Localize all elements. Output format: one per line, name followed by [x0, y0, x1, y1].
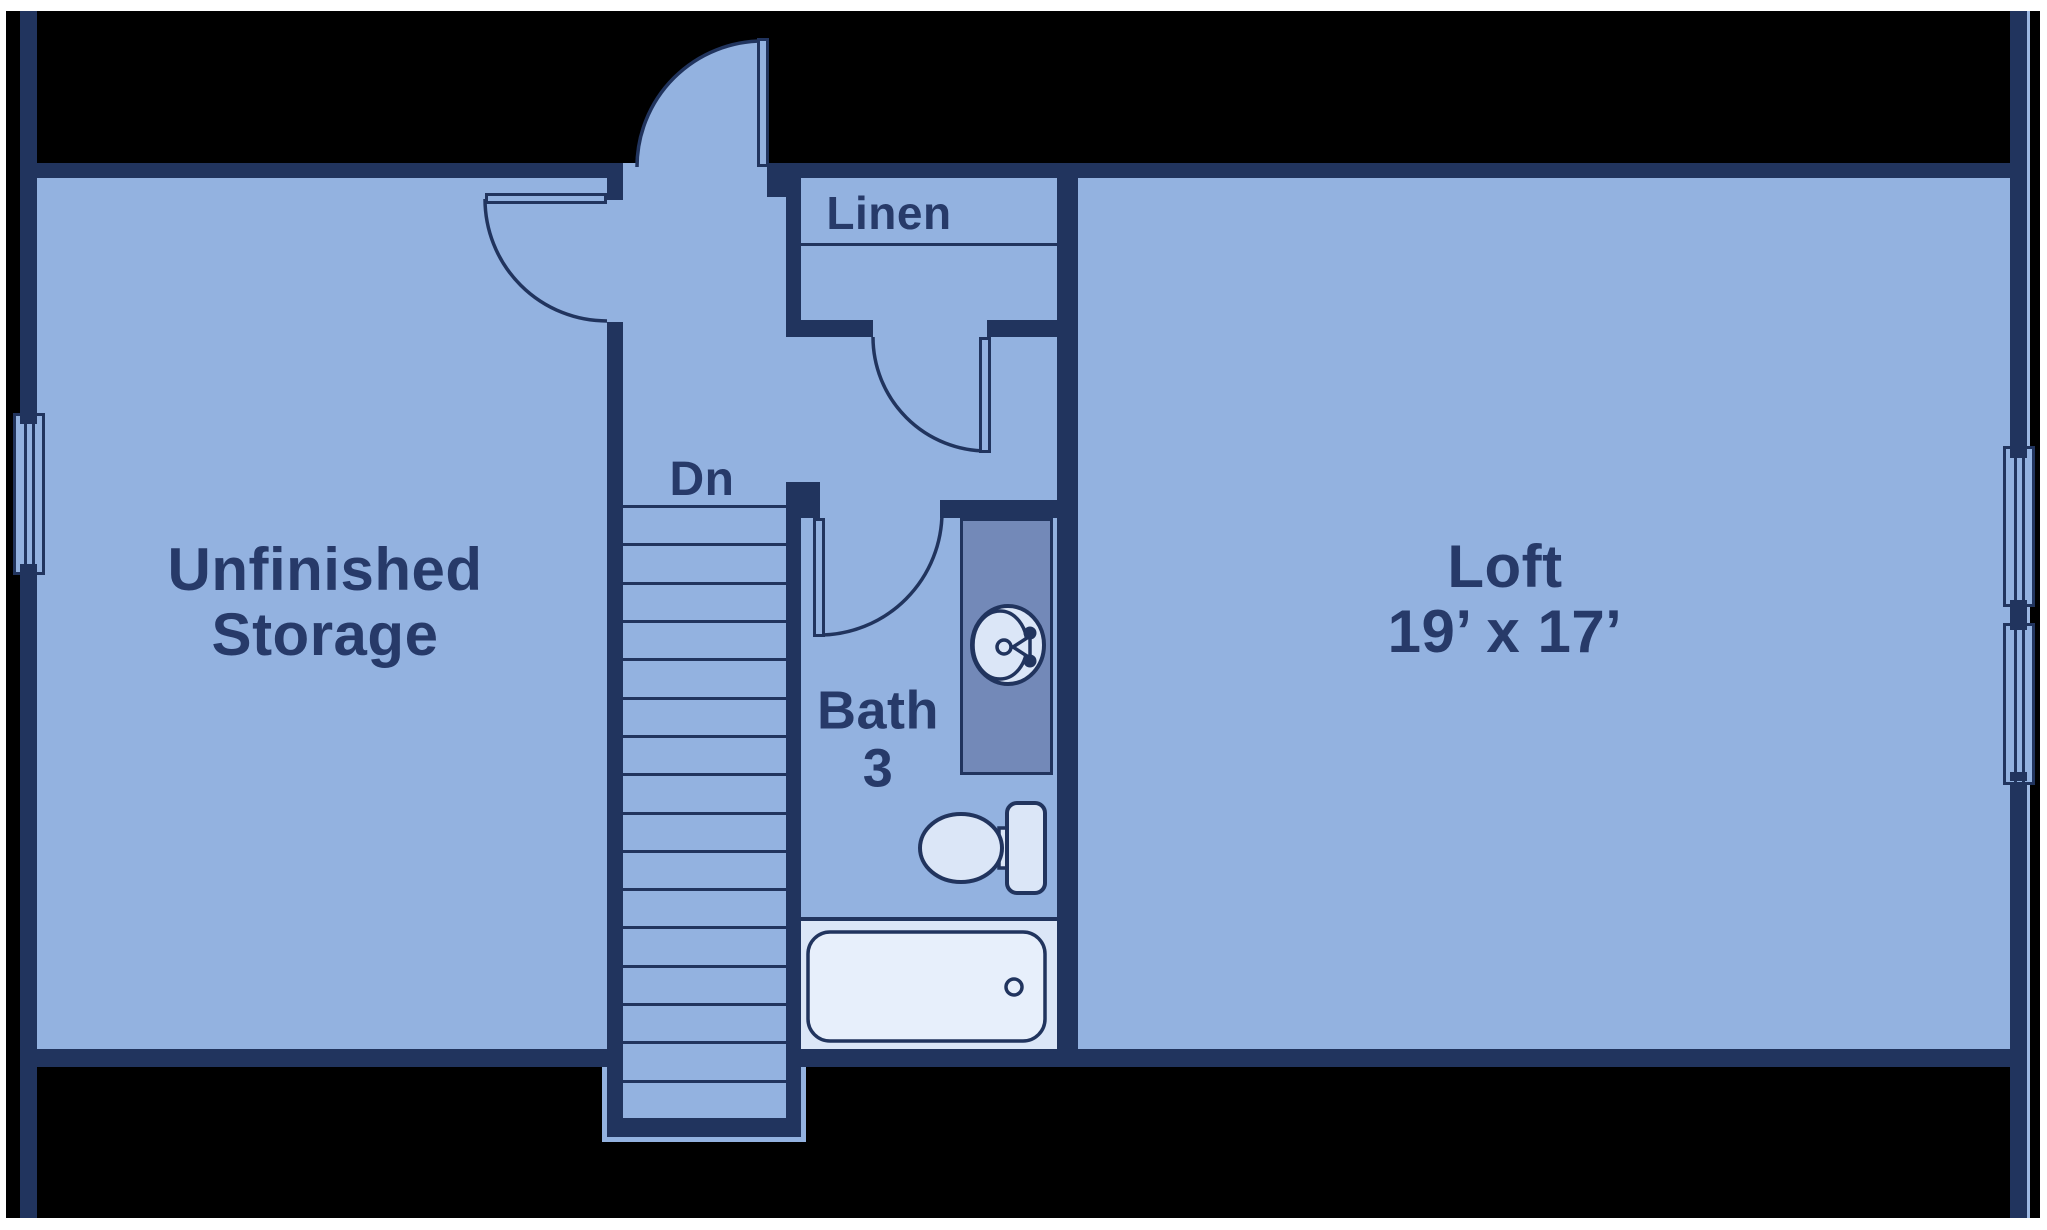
bath-label-line1: Bath [817, 682, 939, 740]
room-label-loft: Loft 19’ x 17’ [1388, 535, 1623, 665]
toilet-fixture [920, 803, 1045, 893]
bathtub-fixture [808, 932, 1045, 1041]
storage-label-line2: Storage [168, 603, 483, 668]
storage-label-line1: Unfinished [168, 538, 483, 603]
attic-door-leaf [757, 38, 769, 167]
room-label-storage: Unfinished Storage [168, 538, 483, 668]
sink-fixture [972, 606, 1044, 684]
linen-door-leaf [979, 337, 991, 453]
loft-label-name: Loft [1388, 535, 1623, 600]
bath-door-swing-arc [819, 512, 942, 635]
bath-door-leaf [813, 518, 825, 637]
storage-door-leaf [485, 193, 607, 204]
room-label-linen: Linen [826, 189, 951, 239]
floor-plan: Unfinished Storage Loft 19’ x 17’ Bath 3… [0, 0, 2047, 1230]
attic-door-swing-fill [637, 41, 763, 167]
stairs-direction-label: Dn [670, 454, 735, 506]
room-label-bath: Bath 3 [817, 682, 939, 799]
bath-label-line2: 3 [817, 740, 939, 798]
storage-door-swing-arc [485, 199, 607, 321]
loft-label-dimensions: 19’ x 17’ [1388, 600, 1623, 665]
linen-door-swing-arc [873, 337, 987, 451]
